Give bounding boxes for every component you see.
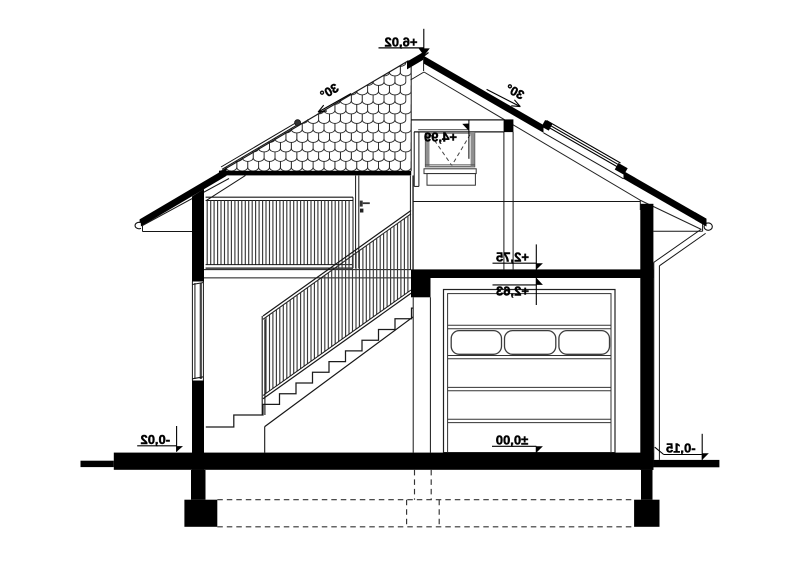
svg-text:+2,63: +2,63 [496, 284, 529, 299]
svg-text:-0,15: -0,15 [666, 441, 696, 456]
svg-text:±0,00: ±0,00 [496, 433, 528, 448]
svg-text:+2,75: +2,75 [496, 249, 529, 264]
svg-text:+4,99: +4,99 [424, 129, 457, 144]
svg-text:+6,02: +6,02 [385, 34, 418, 49]
svg-text:-0,02: -0,02 [140, 432, 170, 447]
